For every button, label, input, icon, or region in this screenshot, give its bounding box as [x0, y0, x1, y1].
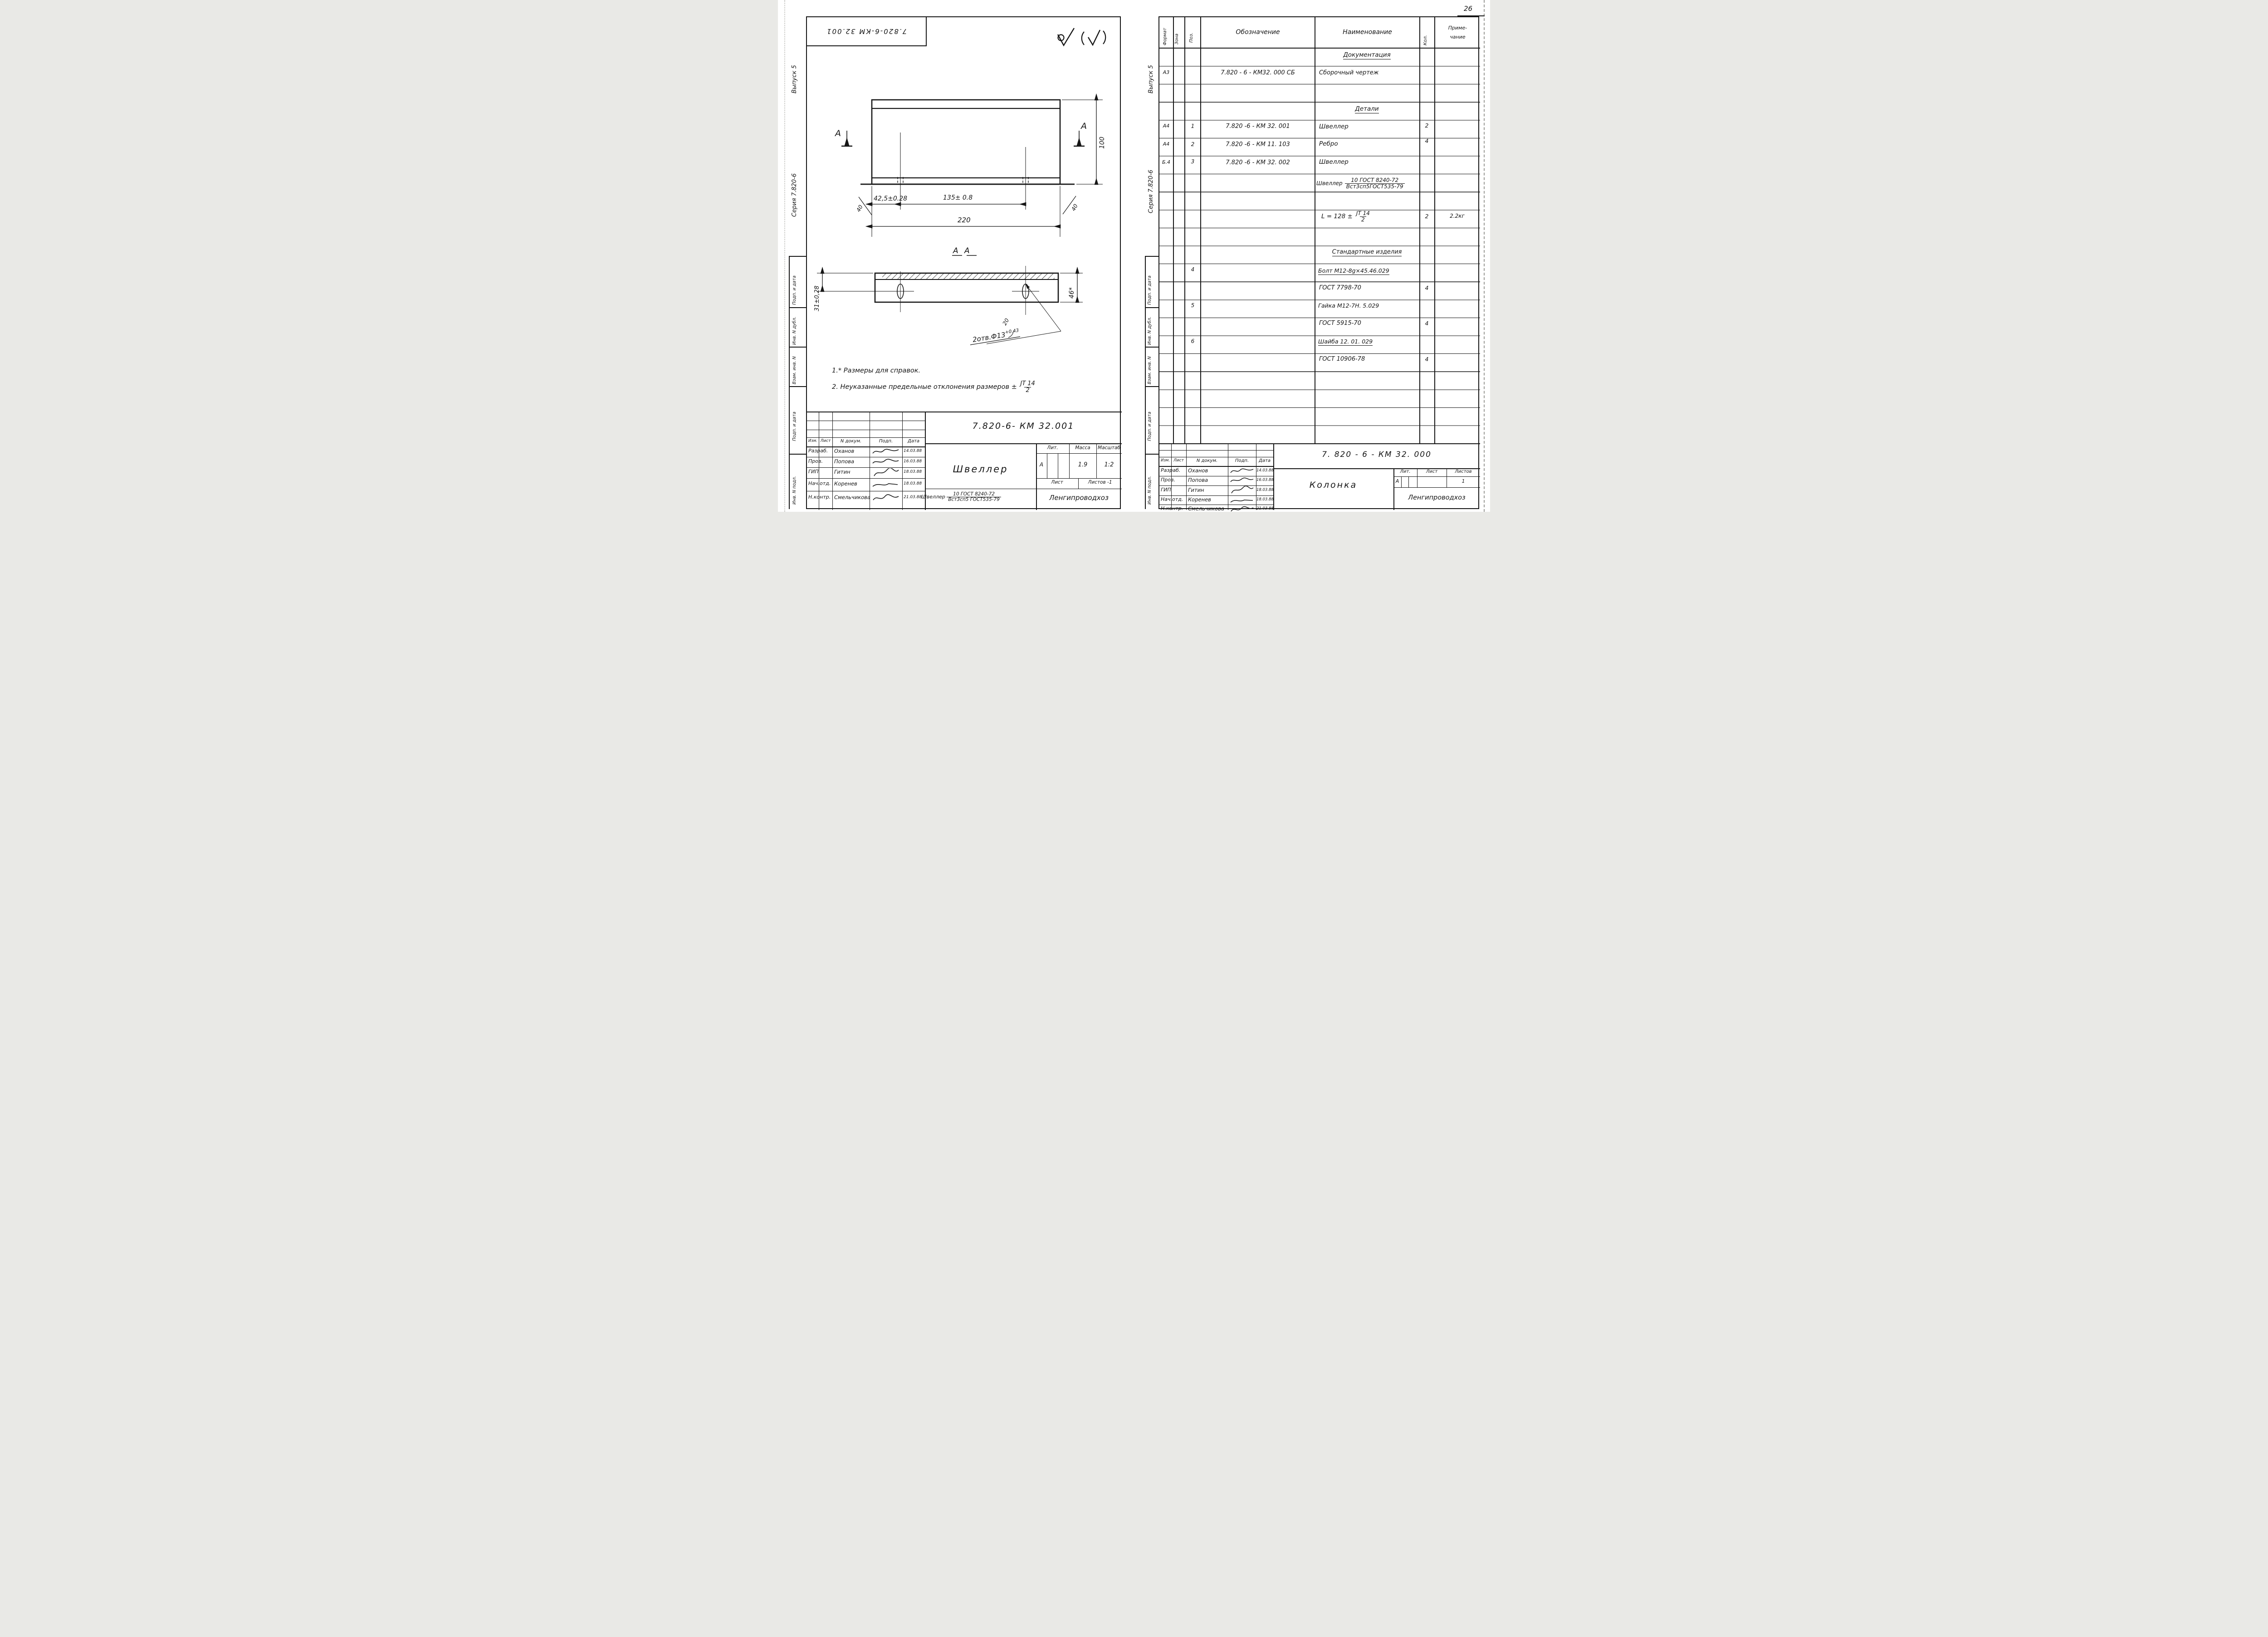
spec-pos: 4 [1185, 267, 1200, 273]
tb-role: Разраб. [1161, 468, 1180, 473]
holes-callout: 2отв.Ф13+0.43 [972, 328, 1020, 344]
tb-date: 16.03.88 [904, 460, 922, 464]
tb-date: 18.03.88 [904, 482, 922, 486]
tb-role: Н.контр. [808, 495, 831, 500]
tb-lit-label: Лит. [1393, 470, 1417, 475]
spec-h-designation: Обозначение [1201, 29, 1315, 36]
tb-organization: Ленгипроводхоз [1036, 495, 1122, 502]
tb-date: 14.03.88 [1256, 469, 1274, 473]
tb-date: 18.03.88 [1256, 488, 1274, 492]
spec-qty: 4 [1419, 138, 1434, 144]
tb-col-docnum: N докум. [1186, 459, 1228, 464]
tb-date: 21.03.88 [904, 495, 922, 500]
tb-col-sign: Подп. [870, 439, 902, 444]
tb-scale-value: 1:2 [1096, 462, 1122, 468]
tb-name: Смельчикова [1188, 506, 1224, 511]
margin-issue-left: Выпуск 5 [792, 65, 798, 93]
bevel-left: 40 [855, 204, 864, 213]
spec-pos: 5 [1185, 303, 1200, 309]
tb-sheet-label: Лист [1417, 470, 1447, 475]
note-2: 2. Неуказанные предельные отклонения раз… [832, 381, 1036, 393]
section-letter-left: А [834, 128, 841, 138]
bevel-right: 40 [1070, 203, 1079, 212]
section-letter-right: А [1080, 121, 1087, 131]
tb-name: Смельчикова [834, 495, 870, 500]
dim-flange: 31±0,28 [814, 286, 821, 311]
note-1: 1.* Размеры для справок. [832, 368, 1036, 374]
tb-role: Нач.отд. [808, 481, 831, 486]
spec-section-parts: Детали [1315, 106, 1419, 112]
tb-col-docnum: N докум. [832, 439, 870, 444]
spec-length: L = 128 ± JT 14 2 [1320, 211, 1372, 222]
tb-organization: Ленгипроводхоз [1393, 495, 1480, 501]
signature-squiggle [871, 458, 900, 466]
stamp-cell-label: Подп. и дата [792, 275, 797, 305]
signature-squiggle [871, 468, 900, 477]
margin-series-left: Серия 7.820-6 [792, 173, 798, 217]
tb-role: Пров. [1161, 477, 1175, 483]
spec-length-fraction: JT 14 2 [1355, 211, 1371, 222]
spec-name: Сборочный чертеж [1319, 70, 1379, 76]
tb-date: 21.03.88 [1256, 507, 1274, 511]
tb-name: Коренев [834, 481, 857, 486]
signature-squiggle [1229, 505, 1255, 512]
spec-designation: 7.820 -6 - КМ 32. 001 [1201, 123, 1315, 130]
tb-sheets-value: 1 [1447, 479, 1480, 484]
spec-note: 2.2кг [1434, 213, 1480, 219]
tb-name: Попова [1188, 477, 1208, 483]
spec-name: ГОСТ 7798-70 [1319, 285, 1361, 291]
tb-role: Н.контр. [1161, 506, 1183, 511]
signature-squiggle [1229, 496, 1255, 505]
margin-series-right: Серия 7.820-6 [1148, 170, 1154, 213]
spec-designation: 7.820 -6 - КМ 11. 103 [1201, 142, 1315, 148]
spec-pos: 3 [1185, 159, 1200, 165]
tb-date: 18.03.88 [904, 470, 922, 474]
left-sheet: 7.820-6-КМ 32.001 [806, 16, 1121, 509]
notes: 1.* Размеры для справок. 2. Неуказанные … [832, 368, 1036, 394]
tb-mass-value: 1.9 [1069, 462, 1096, 468]
spec-name: Ребро [1319, 141, 1338, 147]
spec-h-qty: Кол. [1423, 35, 1428, 45]
signature-squiggle [1229, 467, 1255, 475]
spec-name: ГОСТ 5915-70 [1319, 320, 1361, 327]
tb-role: ГИП [1161, 487, 1171, 493]
spec-pos: 6 [1185, 338, 1200, 344]
spec-qty: 4 [1419, 285, 1434, 291]
spec-name: ГОСТ 10906-78 [1319, 356, 1365, 363]
tb-role: Нач.отд. [1161, 497, 1183, 502]
signature-squiggle [871, 447, 900, 456]
spec-name: Болт М12-8g×45.46.029 [1318, 268, 1389, 274]
stamp-cell-label: Подп. и дата [1148, 275, 1152, 305]
spec-qty: 4 [1419, 320, 1434, 326]
spec-material: Швеллер 10 ГОСТ 8240-72 Вст3сп5ГОСТ535-7… [1315, 177, 1406, 190]
stamp-cell-label: Подп. и дата [792, 412, 797, 441]
tb-doc-number: 7.820-6- КМ 32.001 [929, 422, 1117, 431]
dim-height: 100 [1099, 137, 1106, 149]
tb-role: Пров. [808, 459, 823, 464]
right-sheet: Формат Зона Поз. Обозначение Наименовани… [1158, 16, 1479, 509]
tb-col-sign: Подп. [1228, 459, 1256, 464]
spec-section-std: Стандартные изделия [1315, 249, 1419, 255]
tb-date: 14.03.88 [904, 449, 922, 453]
section-title: А А [953, 246, 972, 255]
spec-name: Швеллер [1319, 123, 1349, 130]
dim-total-width: 220 [958, 216, 971, 224]
stamp-cell-label: Инв. N дубл. [792, 317, 797, 345]
spec-format: А4 [1159, 123, 1173, 129]
note-2-fraction: JT 14 2 [1019, 381, 1036, 393]
spec-format: А4 [1159, 142, 1173, 147]
tb-name: Коренев [1188, 497, 1211, 502]
tb-col-izm: Изм. [1159, 459, 1171, 463]
tb-doc-number: 7. 820 - 6 - КМ 32. 000 [1273, 451, 1480, 459]
spec-h-pos: Поз. [1189, 33, 1194, 43]
spec-format: А3 [1159, 70, 1173, 75]
spec-qty: 2 [1419, 213, 1434, 219]
tb-lit-value: А [1393, 479, 1401, 484]
spec-h-note2: чание [1435, 34, 1480, 40]
tb-name: Гитин [834, 469, 850, 475]
page-edge-dashed [1484, 0, 1485, 512]
spec-h-name: Наименование [1315, 29, 1419, 36]
spec-qty: 2 [1419, 123, 1434, 128]
spec-format: Б.4 [1159, 160, 1173, 165]
spec-designation: 7.820 - 6 - КМ32. 000 СБ [1201, 70, 1315, 76]
tb-col-list: Лист [819, 439, 832, 443]
tb-name: Попова [834, 459, 854, 464]
margin-issue-right: Выпуск 5 [1148, 65, 1154, 93]
spec-h-note1: Приме- [1435, 25, 1480, 31]
tb-name: Оханов [834, 448, 854, 454]
spec-h-zone: Зона [1175, 34, 1179, 44]
spec-qty: 4 [1419, 356, 1434, 362]
tb-sheets-label: Листов -1 [1078, 480, 1122, 485]
perforation-edge [784, 0, 785, 512]
stamp-cell-label: Подп. и дата [1148, 412, 1152, 441]
dim-hole-offset: 42,5±0.28 [874, 195, 907, 202]
dim-angle: 20 [1001, 317, 1010, 327]
tb-date: 18.03.88 [1256, 498, 1274, 502]
spec-name: Шайба 12. 01. 029 [1318, 338, 1373, 344]
signature-squiggle [871, 480, 900, 489]
tb-col-date: Дата [902, 439, 925, 444]
tb-date: 16.03.88 [1256, 478, 1274, 482]
tb-role: Разраб. [808, 448, 828, 454]
signature-squiggle [1229, 486, 1255, 495]
spec-pos: 1 [1185, 123, 1200, 129]
tb-sheet-label: Лист [1036, 480, 1078, 485]
spec-name: Гайка М12-7Н. 5.029 [1318, 303, 1379, 309]
tb-sheets-label: Листов [1447, 470, 1480, 475]
stamp-cell-label: Инв. N подл. [1148, 476, 1152, 505]
scanned-gost-drawing: 26 7.820-6-КМ 32.001 [778, 0, 1490, 512]
tb-part-name: Швеллер [925, 464, 1036, 474]
stamp-cell-label: Взам. инв. N [792, 356, 797, 384]
spec-designation: 7.820 -6 - КМ 32. 002 [1201, 160, 1315, 166]
tb-lit-label: Лит. [1036, 446, 1069, 451]
tb-scale-label: Масштаб [1096, 446, 1122, 451]
tb-col-izm: Изм. [807, 439, 819, 443]
spec-material-fraction: 10 ГОСТ 8240-72 Вст3сп5ГОСТ535-79 [1345, 177, 1405, 189]
spec-h-format: Формат [1163, 28, 1168, 45]
dim-hole-spacing: 135± 0.8 [943, 194, 973, 201]
page-number: 26 [1464, 5, 1472, 13]
tb-name: Оханов [1188, 468, 1208, 473]
spec-pos: 2 [1185, 142, 1200, 147]
drawing-canvas: 42,5±0.28 135± 0.8 220 100 40 40 А А А А [807, 17, 1122, 412]
tb-role: ГИП [808, 469, 819, 475]
signature-squiggle [871, 494, 900, 503]
tb-material-fraction: 10 ГОСТ 8240-72 Вст3сп5 ГОСТ535-79 [947, 492, 1001, 502]
spec-name: Швеллер [1319, 159, 1349, 165]
tb-object-name: Колонка [1273, 481, 1393, 490]
dim-section-height: 46* [1068, 287, 1075, 299]
tb-col-list: Лист [1171, 459, 1186, 463]
tb-lit-value: А [1036, 462, 1047, 468]
tb-name: Гитин [1188, 487, 1204, 493]
stamp-cell-label: Инв. N подл. [792, 476, 797, 505]
tb-col-date: Дата [1256, 459, 1273, 464]
tb-mass-label: Масса [1069, 446, 1096, 451]
stamp-cell-label: Инв. N дубл. [1148, 317, 1152, 345]
tb-material: Швеллер 10 ГОСТ 8240-72 Вст3сп5 ГОСТ535-… [921, 492, 1001, 502]
stamp-cell-label: Взам. инв. N [1148, 356, 1152, 384]
spec-section-docs: Документация [1315, 52, 1419, 58]
signature-squiggle [1229, 476, 1255, 485]
